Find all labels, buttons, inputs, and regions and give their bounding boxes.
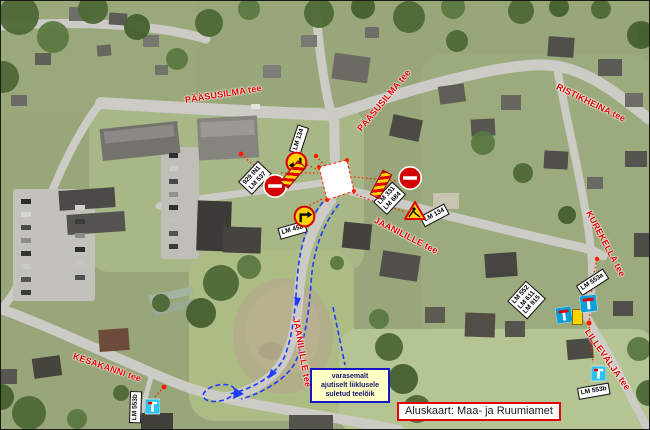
dead-end-sign-icon [591, 365, 606, 382]
parked-cars [21, 104, 260, 295]
note-line: ajutiselt liiklusele [313, 381, 387, 390]
sign-code: LM 553b [580, 385, 607, 397]
dead-end-sign-icon [555, 306, 573, 324]
note-line: varasemalt [313, 372, 387, 381]
sign-label-lm553a: LM 553a [576, 269, 609, 296]
sign-code: LM 134 [423, 207, 446, 224]
sign-code: LM 553b [131, 394, 139, 420]
street-label-kesakanni: KESAKANNI tee [72, 351, 143, 384]
roadworks-sign-icon [404, 201, 426, 221]
sign-label-lm553b-east: LM 553b [577, 383, 611, 400]
street-label-paasusilma-west: PÄÄSUSILMA tee [184, 83, 262, 105]
street-label-paasusilma-northeast: PÄÄSUSILMA tee [355, 67, 412, 133]
dead-end-sign-icon [145, 398, 160, 415]
no-entry-icon [397, 165, 423, 191]
sign-code: LM 134 [292, 128, 306, 151]
traffic-plan-map: PÄÄSUSILMA tee PÄÄSUSILMA tee RISTIKHEIN… [0, 0, 650, 430]
sign-label-lm553b-west: LM 553b [129, 391, 142, 423]
note-line: suletud teelõik [313, 390, 387, 399]
detour-arrow-icon [293, 205, 316, 228]
sign-label-cluster-southeast: LM 552 LM 611 LM 915 [507, 281, 545, 320]
closed-area [317, 158, 356, 202]
sign-code: LM 553a [579, 272, 605, 292]
street-label-kurekella: KUREKELLA tee [584, 209, 627, 278]
street-label-ristikheina: RISTIKHEINA tee [555, 82, 627, 124]
basemap-credit: Aluskaart: Maa- ja Ruumiamet [397, 402, 561, 421]
dead-end-sign-icon [579, 294, 598, 313]
closure-note: varasemalt ajutiselt liiklusele suletud … [310, 368, 390, 403]
route-arrowheads [233, 297, 301, 399]
